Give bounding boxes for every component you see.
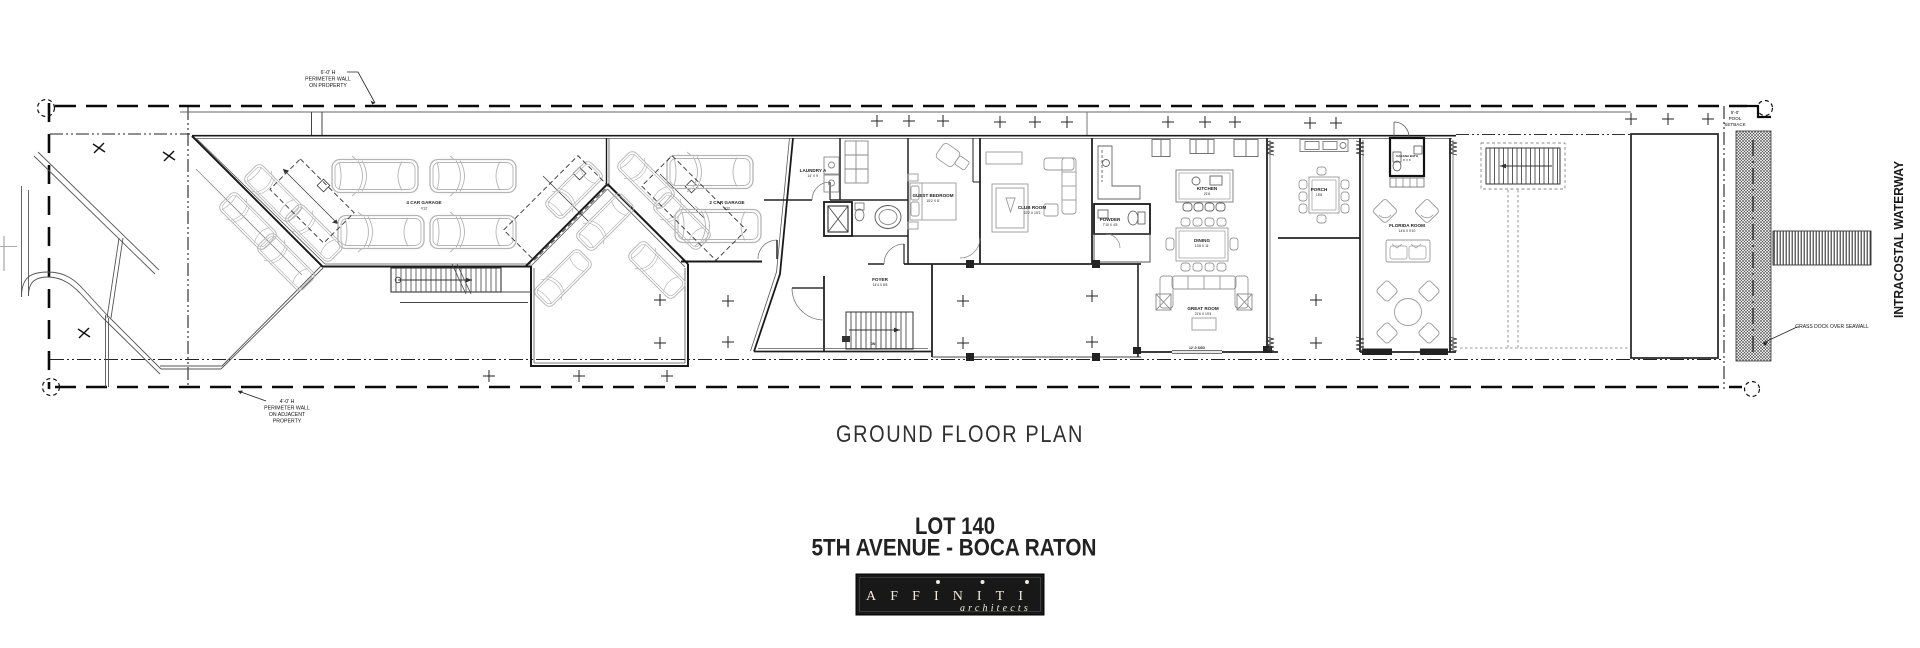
svg-text:SETBACK: SETBACK xyxy=(1724,122,1746,127)
svg-text:LAUNDRY A: LAUNDRY A xyxy=(800,168,827,173)
svg-text:PERIMETER WALL: PERIMETER WALL xyxy=(305,77,351,83)
svg-text:FLORIDA ROOM: FLORIDA ROOM xyxy=(1389,223,1425,228)
svg-text:22'2 X 15'2: 22'2 X 15'2 xyxy=(1024,211,1041,215)
svg-text:GREAT ROOM: GREAT ROOM xyxy=(1187,306,1218,311)
svg-text:4'-0' H: 4'-0' H xyxy=(280,399,295,405)
svg-text:4 CAR GARAGE: 4 CAR GARAGE xyxy=(406,200,441,205)
svg-text:6'-0' H: 6'-0' H xyxy=(321,70,336,76)
svg-text:DINING: DINING xyxy=(1194,238,1211,243)
svg-text:14'6 X 9'10: 14'6 X 9'10 xyxy=(1399,229,1416,233)
svg-text:V12: V12 xyxy=(421,207,427,211)
svg-text:GROUND FLOOR PLAN: GROUND FLOOR PLAN xyxy=(836,421,1084,448)
svg-text:2 CAR GARAGE: 2 CAR GARAGE xyxy=(709,200,744,205)
svg-text:ON PROPERTY: ON PROPERTY xyxy=(309,83,347,89)
svg-text:15'2 X 8': 15'2 X 8' xyxy=(927,199,940,203)
svg-text:V12: V12 xyxy=(724,207,730,211)
svg-text:15'6: 15'6 xyxy=(1316,193,1322,197)
svg-text:21'6 X 19'4: 21'6 X 19'4 xyxy=(1195,312,1212,316)
svg-text:PERIMETER WALL: PERIMETER WALL xyxy=(264,406,310,412)
svg-text:5TH AVENUE - BOCA RATON: 5TH AVENUE - BOCA RATON xyxy=(812,535,1097,562)
svg-text:21'6: 21'6 xyxy=(1204,192,1210,196)
svg-text:ON ADJACENT: ON ADJACENT xyxy=(269,412,306,418)
svg-text:architects: architects xyxy=(960,603,1031,614)
svg-text:PORCH: PORCH xyxy=(1311,187,1328,192)
svg-text:CLUB ROOM: CLUB ROOM xyxy=(1018,205,1046,210)
svg-text:GRASS DOCK OVER SEAWALL: GRASS DOCK OVER SEAWALL xyxy=(1795,324,1869,330)
svg-text:14' X 9': 14' X 9' xyxy=(807,174,818,178)
svg-text:POOL: POOL xyxy=(1729,116,1742,121)
svg-text:9' X 6': 9' X 6' xyxy=(1403,158,1412,162)
svg-text:14'4 X 8'8: 14'4 X 8'8 xyxy=(873,283,888,287)
svg-text:POWDER: POWDER xyxy=(1100,217,1121,222)
svg-text:DN: DN xyxy=(871,342,876,346)
svg-text:INTRACOSTAL WATERWAY: INTRACOSTAL WATERWAY xyxy=(1891,161,1906,318)
svg-text:7'10 X 4'8: 7'10 X 4'8 xyxy=(1103,223,1118,227)
svg-text:KITCHEN: KITCHEN xyxy=(1197,186,1218,191)
svg-text:PROPERTY: PROPERTY xyxy=(273,419,302,425)
svg-text:13'8 X 11': 13'8 X 11' xyxy=(1195,244,1210,248)
svg-text:12'-0 SGD: 12'-0 SGD xyxy=(1189,346,1205,350)
svg-text:GUEST BEDROOM: GUEST BEDROOM xyxy=(912,193,953,198)
svg-text:5'-0': 5'-0' xyxy=(1731,110,1740,115)
svg-text:FOYER: FOYER xyxy=(872,277,889,282)
